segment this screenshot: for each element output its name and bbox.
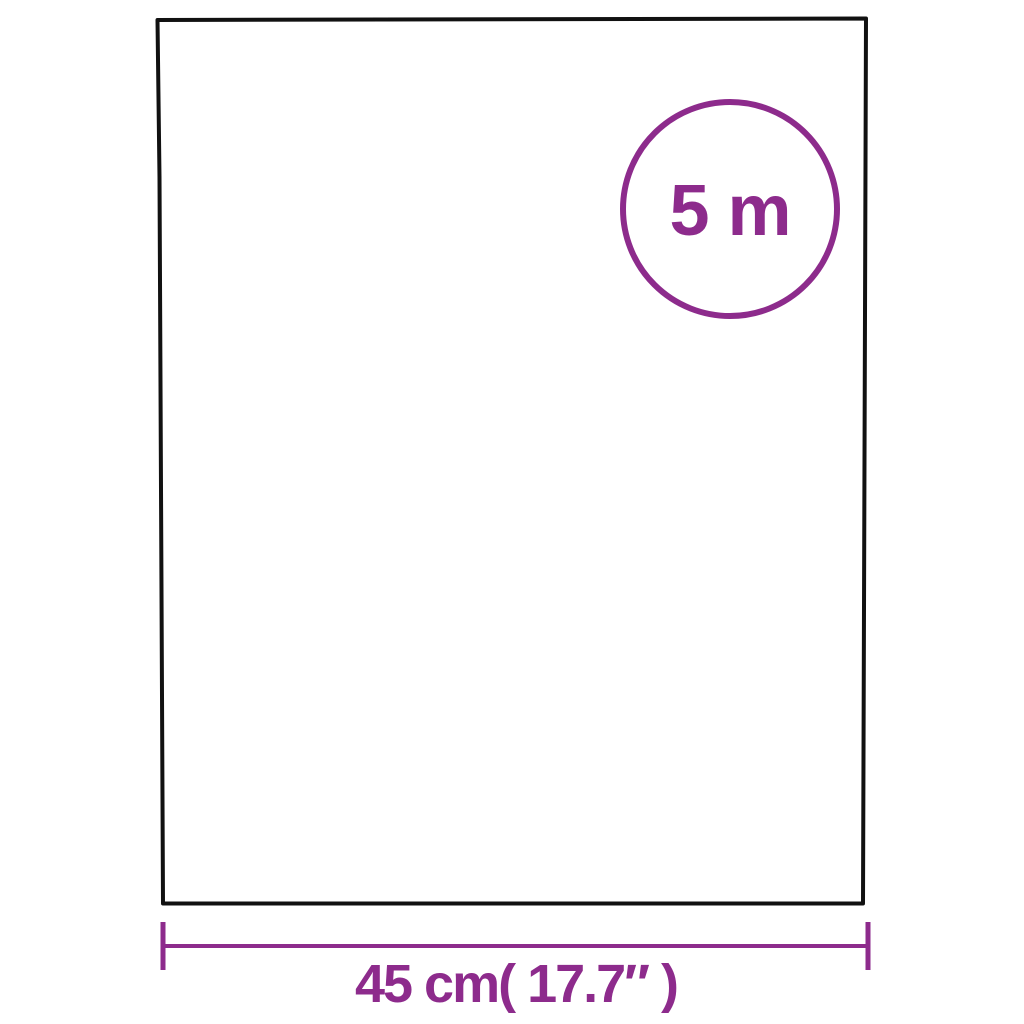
width-dimension-label: 45 cm( 17.7″ ) (355, 954, 677, 1014)
dimension-diagram: 5 m 45 cm( 17.7″ ) (0, 0, 1024, 1024)
length-badge-label: 5 m (669, 171, 790, 251)
